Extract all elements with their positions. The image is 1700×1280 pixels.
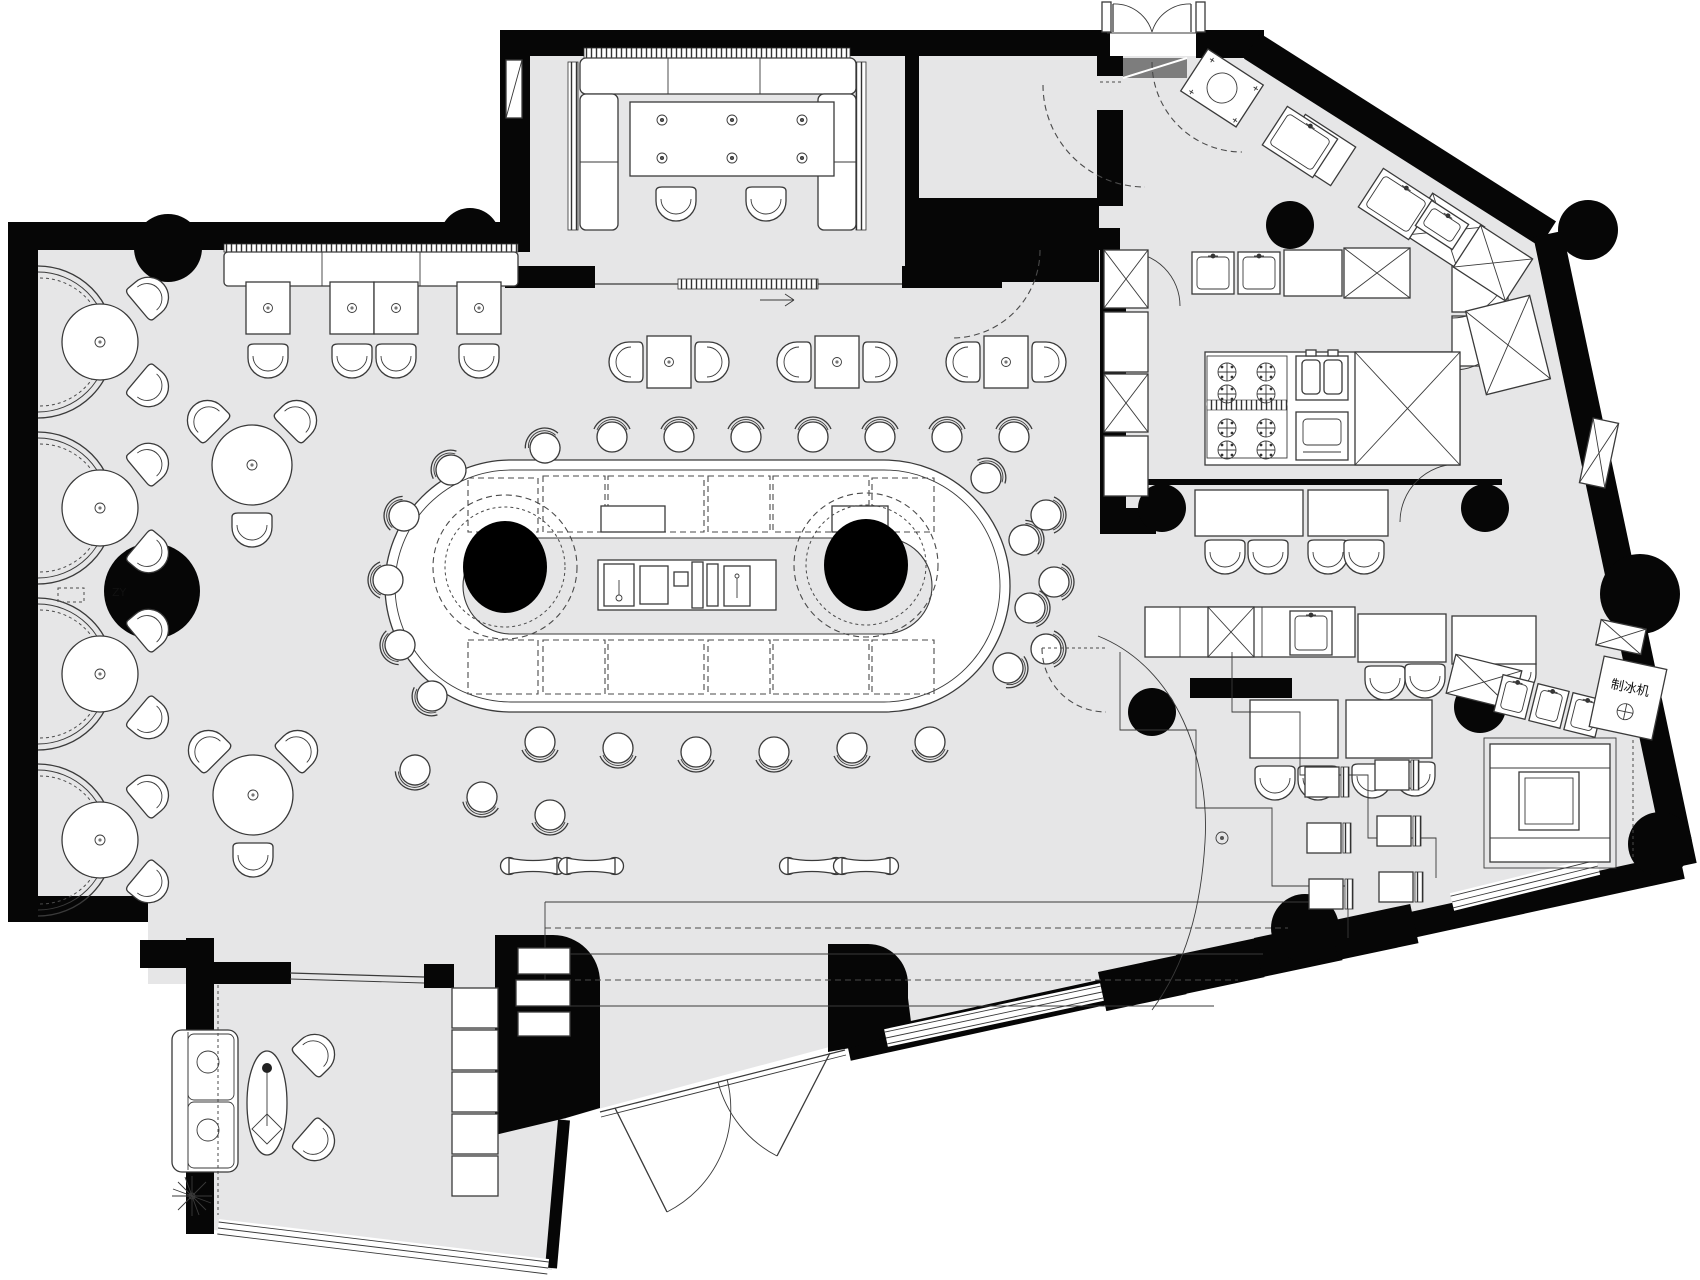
burner bbox=[1257, 441, 1275, 459]
wall-lounge-jog bbox=[140, 940, 210, 968]
bench bbox=[501, 858, 566, 875]
banquette-back-hatch-top bbox=[584, 48, 850, 58]
square-table bbox=[984, 336, 1028, 388]
chair bbox=[232, 513, 272, 547]
column-note-label: ZY bbox=[112, 586, 127, 599]
stair-tread bbox=[452, 1072, 498, 1112]
terrace-table bbox=[1379, 872, 1423, 902]
private-dining-table bbox=[630, 102, 834, 176]
topleft-banquette bbox=[224, 244, 518, 286]
prep-table bbox=[1250, 700, 1338, 758]
chair bbox=[1344, 540, 1384, 574]
ice-maker: 制冰机 bbox=[1589, 656, 1667, 740]
wall-left bbox=[8, 222, 38, 920]
stair-tread bbox=[452, 1156, 498, 1196]
square-table bbox=[330, 282, 374, 334]
lounge-sofa bbox=[172, 1030, 238, 1172]
stair-tread bbox=[452, 988, 498, 1028]
prep-table bbox=[1346, 700, 1432, 758]
wall-kitchen-mid-thin bbox=[1145, 479, 1502, 485]
wall-private-front-right bbox=[902, 266, 1002, 288]
burner bbox=[1218, 419, 1236, 437]
column bbox=[134, 214, 202, 282]
burner bbox=[1257, 363, 1275, 381]
chair bbox=[376, 344, 416, 378]
banquette-back-hatch-right bbox=[856, 62, 866, 230]
terrace-table bbox=[1305, 767, 1349, 797]
kitchen-worktable bbox=[1358, 614, 1446, 662]
terrace-table bbox=[1309, 879, 1353, 909]
wall-backroom-right-b bbox=[1097, 110, 1123, 206]
chair bbox=[1365, 666, 1405, 700]
burner bbox=[1218, 441, 1236, 459]
square-table bbox=[374, 282, 418, 334]
equipment-cabinet bbox=[1104, 374, 1148, 432]
top-double-door bbox=[1102, 2, 1205, 33]
chair bbox=[233, 843, 273, 877]
kitchen-counter bbox=[1284, 250, 1342, 296]
bench bbox=[834, 858, 899, 875]
lounge-table bbox=[247, 1051, 287, 1155]
column bbox=[1461, 484, 1509, 532]
chair bbox=[1032, 342, 1066, 382]
wall-bottom-left-wing bbox=[8, 896, 148, 922]
round-table bbox=[213, 755, 293, 835]
terrace-table bbox=[1377, 816, 1421, 846]
bench-hatch bbox=[224, 244, 518, 252]
kitchen-cabinet bbox=[1104, 312, 1148, 372]
bar-station bbox=[601, 506, 665, 532]
chair bbox=[1205, 540, 1245, 574]
chair bbox=[332, 344, 372, 378]
column bbox=[1628, 812, 1692, 876]
bench bbox=[559, 858, 624, 875]
stair-tread bbox=[518, 1012, 570, 1036]
chair bbox=[1308, 540, 1348, 574]
wall-private-right bbox=[905, 56, 919, 204]
wall-vestibule-stub bbox=[1040, 228, 1120, 250]
equipment-cabinet bbox=[1104, 250, 1148, 308]
equipment-cabinet bbox=[1355, 352, 1460, 465]
floor-plan-canvas: 制冰机 bbox=[0, 0, 1700, 1280]
wall-kitchen-lower bbox=[1190, 678, 1292, 698]
wall-lounge-north bbox=[207, 962, 291, 984]
chair bbox=[746, 187, 786, 221]
lounge-stairs bbox=[452, 988, 498, 1196]
chair bbox=[459, 344, 499, 378]
chair bbox=[1405, 664, 1445, 698]
plan-labels: ZY bbox=[112, 586, 127, 599]
chair bbox=[1255, 766, 1295, 800]
chair bbox=[946, 342, 980, 382]
chair bbox=[777, 342, 811, 382]
equipment-cabinet bbox=[1344, 248, 1410, 298]
sink bbox=[1192, 252, 1234, 294]
burner bbox=[1257, 419, 1275, 437]
wall-backroom-right-a bbox=[1097, 56, 1123, 76]
chair bbox=[695, 342, 729, 382]
bar-island bbox=[598, 560, 776, 610]
terrace-table bbox=[1375, 760, 1419, 790]
chair bbox=[656, 187, 696, 221]
fryers bbox=[1296, 350, 1348, 400]
window-private-slit bbox=[506, 60, 522, 118]
kitchen-cabinet bbox=[1104, 436, 1148, 496]
equipment-cabinet bbox=[1208, 607, 1254, 657]
stair-tread bbox=[452, 1030, 498, 1070]
lounge-plant bbox=[172, 1176, 212, 1216]
wall-lounge-north-end bbox=[424, 964, 454, 988]
stair-tread bbox=[518, 948, 570, 974]
griddle bbox=[1207, 400, 1287, 410]
chair bbox=[609, 342, 643, 382]
square-table bbox=[457, 282, 501, 334]
burner bbox=[1257, 385, 1275, 403]
banquette-sofa-top bbox=[580, 58, 856, 94]
entry-side-steps bbox=[516, 948, 570, 1036]
column bbox=[1558, 200, 1618, 260]
terrace-table bbox=[1307, 823, 1351, 853]
column bbox=[1266, 201, 1314, 249]
chair bbox=[248, 344, 288, 378]
square-table bbox=[246, 282, 290, 334]
sink bbox=[1290, 611, 1332, 655]
burner bbox=[1218, 363, 1236, 381]
stair-tread bbox=[516, 980, 570, 1006]
burner bbox=[1218, 385, 1236, 403]
square-table bbox=[815, 336, 859, 388]
square-table bbox=[647, 336, 691, 388]
kitchen-worktable bbox=[1308, 490, 1388, 536]
round-table bbox=[212, 425, 292, 505]
chair bbox=[1248, 540, 1288, 574]
wall-bench bbox=[224, 252, 518, 286]
oven bbox=[1296, 412, 1348, 460]
sink bbox=[1238, 252, 1280, 294]
chair bbox=[863, 342, 897, 382]
planter bbox=[1484, 738, 1616, 868]
kitchen-worktable bbox=[1195, 490, 1303, 536]
floor-plan-page: 制冰机 bbox=[0, 0, 1700, 1280]
stair-tread bbox=[452, 1114, 498, 1154]
banquette-back-hatch-left bbox=[568, 62, 578, 230]
